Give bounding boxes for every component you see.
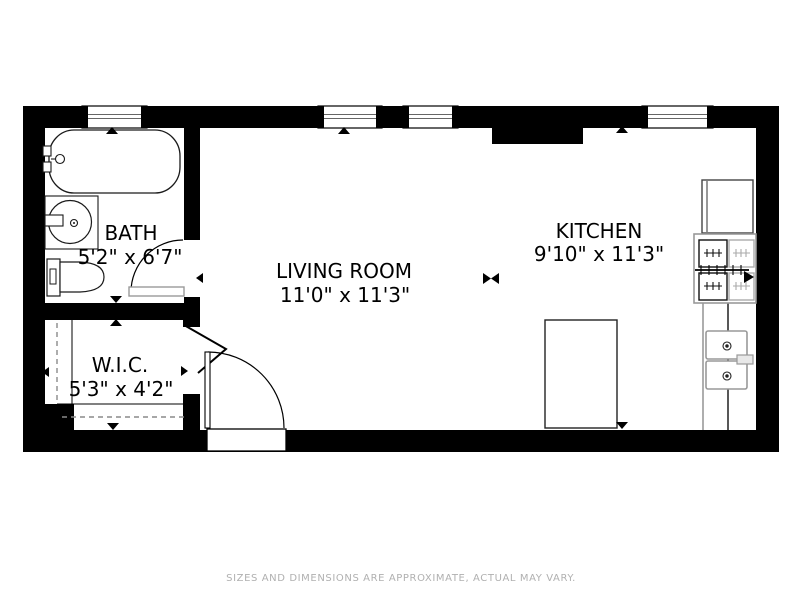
marker-triangle <box>616 422 628 429</box>
wic-southwest-wall-block <box>42 404 74 431</box>
wic-east-wall-upper <box>183 310 200 327</box>
bath-door-leaf <box>129 287 184 296</box>
window <box>82 106 147 128</box>
bath-dimensions: 5'2" x 6'7" <box>78 245 183 269</box>
bathroom-fixtures <box>43 130 180 296</box>
left-wall <box>23 106 45 452</box>
living-room-dimensions: 11'0" x 11'3" <box>280 283 410 307</box>
stove <box>694 234 756 303</box>
marker-triangle <box>181 366 188 376</box>
island-counter <box>545 320 617 428</box>
marker-triangle <box>483 273 491 284</box>
kitchen-living-wall-stub <box>492 128 583 144</box>
bottom-wall <box>23 430 779 452</box>
bath-wic-divider-wall <box>42 303 200 320</box>
right-wall <box>756 106 779 452</box>
entry-door-swing-arc <box>208 352 284 428</box>
bath-east-wall-upper <box>184 128 200 241</box>
entry-door-threshold <box>207 429 286 451</box>
living-room-label: LIVING ROOM <box>276 259 412 283</box>
marker-triangle <box>110 319 122 326</box>
wic-label: W.I.C. <box>92 353 148 377</box>
floor-plan: BATH 5'2" x 6'7" LIVING ROOM 11'0" x 11'… <box>0 0 800 600</box>
disclaimer-text: SIZES AND DIMENSIONS ARE APPROXIMATE, AC… <box>226 573 576 584</box>
wic-east-wall-lower <box>183 394 200 431</box>
marker-triangle <box>110 296 122 303</box>
bathtub <box>49 130 180 193</box>
window <box>318 106 382 128</box>
entry-door <box>205 352 286 451</box>
bathroom-sink-faucet <box>45 215 63 226</box>
kitchen-sink <box>706 331 753 389</box>
window <box>642 106 713 128</box>
entry-door-leaf <box>205 352 210 428</box>
kitchen-dimensions: 9'10" x 11'3" <box>534 242 664 266</box>
refrigerator <box>702 180 753 233</box>
bath-label: BATH <box>104 221 157 245</box>
wic-dimensions: 5'3" x 4'2" <box>69 377 174 401</box>
marker-triangle <box>107 423 119 430</box>
kitchen-label: KITCHEN <box>556 219 643 243</box>
kitchen-fixtures <box>545 180 756 430</box>
toilet-flush-button <box>50 269 56 284</box>
kitchen-sink-faucet <box>737 355 753 364</box>
floor-plan-page: BATH 5'2" x 6'7" LIVING ROOM 11'0" x 11'… <box>0 0 800 600</box>
window <box>403 106 458 128</box>
marker-triangle <box>491 273 499 284</box>
